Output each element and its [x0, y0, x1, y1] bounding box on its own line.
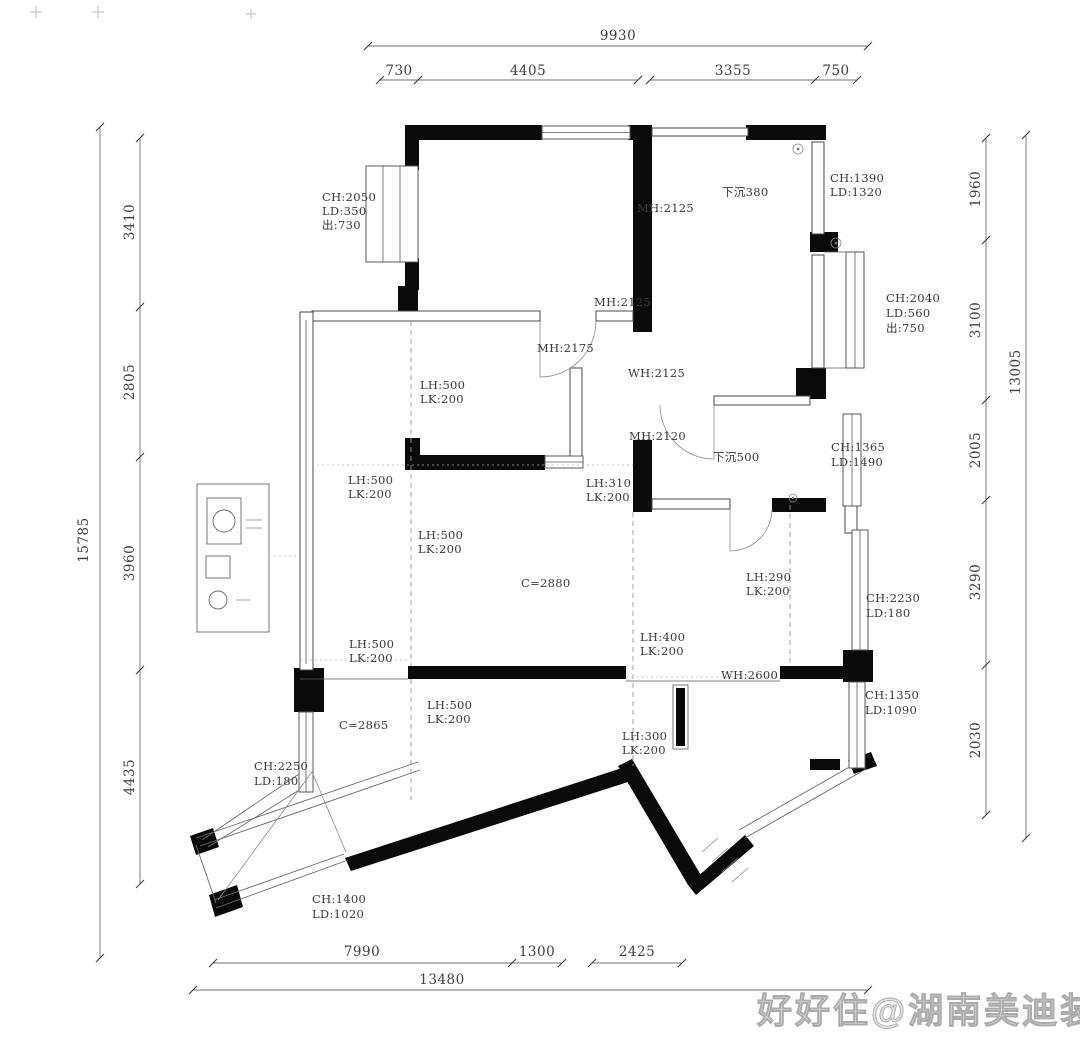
- dim-right-seg-3: 3290: [968, 564, 984, 600]
- dim-left-seg-2: 3960: [122, 545, 138, 581]
- annotation-window-width-bottom: WH:2600: [721, 668, 778, 682]
- dim-left-seg-3: 4435: [122, 759, 138, 795]
- annotation-beam-bedroom-left: LH:500: [420, 378, 465, 392]
- svg-text:LK:200: LK:200: [640, 644, 684, 658]
- dim-top-overall: 9930: [600, 28, 636, 44]
- dim-top-seg-2: 3355: [715, 63, 751, 79]
- annotation-door-height-mid-low: MH:2120: [629, 429, 686, 443]
- svg-text:LD:180: LD:180: [866, 606, 910, 620]
- annotation-bay-window-top-left: CH:2050: [322, 190, 376, 204]
- dim-top-seg-3: 750: [822, 63, 849, 79]
- svg-text:LK:200: LK:200: [420, 392, 464, 406]
- annotation-door-height-mid-left: MH:2175: [537, 341, 594, 355]
- annotation-door-height-top: MH:2125: [637, 201, 694, 215]
- frame-marks: [30, 6, 256, 19]
- windows: [299, 126, 868, 792]
- dim-bottom-seg-2: 2425: [619, 944, 655, 960]
- dim-top-seg-1: 4405: [510, 63, 546, 79]
- svg-text:LD:180: LD:180: [254, 774, 298, 788]
- svg-text:LD:1320: LD:1320: [830, 185, 882, 199]
- svg-text:LK:200: LK:200: [348, 487, 392, 501]
- annotation-window-height-mid: WH:2125: [628, 366, 685, 380]
- svg-text:LD:560: LD:560: [886, 306, 930, 320]
- floor-plan-drawing: 9930 730 4405 3355 750 15785 3410 2805 3…: [0, 0, 1080, 1051]
- dim-bottom-seg-0: 7990: [344, 944, 380, 960]
- dim-right-seg-0: 1960: [968, 171, 984, 207]
- svg-text:LK:200: LK:200: [349, 651, 393, 665]
- room-annotations: CH:2050 LD:350 出:730 MH:2125 下沉380 CH:13…: [254, 171, 940, 921]
- annotation-beam-living-top: LH:500: [418, 528, 463, 542]
- annotation-beam-entry: LH:300: [622, 729, 667, 743]
- watermark-text: 好好住@湖南美迪装饰: [756, 992, 1080, 1031]
- walls-thin: [196, 128, 866, 908]
- annotation-window-balcony-bottom: CH:1400: [312, 892, 366, 906]
- dim-left-overall: 15785: [76, 517, 92, 562]
- svg-text:LD:1090: LD:1090: [865, 703, 917, 717]
- dim-bottom-overall: 13480: [419, 972, 464, 988]
- annotation-beam-dining: LH:500: [427, 698, 472, 712]
- dim-right-overall: 13005: [1008, 349, 1024, 394]
- annotation-window-top-right: CH:1390: [830, 171, 884, 185]
- annotation-door-height-mid-top: MH:2125: [594, 295, 651, 309]
- dim-top-seg-0: 730: [385, 63, 412, 79]
- svg-text:出:730: 出:730: [322, 218, 361, 232]
- annotation-beam-living-bottom: LH:400: [640, 630, 685, 644]
- annotation-window-right-low: CH:2230: [866, 591, 920, 605]
- annotation-beam-left-lower: LH:500: [349, 637, 394, 651]
- annotation-ceiling-dining: C=2865: [339, 718, 389, 732]
- annotation-sunken-area-top: 下沉380: [722, 185, 768, 199]
- annotation-window-right-bottom: CH:1350: [865, 688, 919, 702]
- svg-text:LD:1490: LD:1490: [831, 455, 883, 469]
- annotation-beam-corridor: LH:310: [586, 476, 631, 490]
- dim-right-seg-2: 2005: [968, 432, 984, 468]
- svg-text:LK:200: LK:200: [746, 584, 790, 598]
- annotation-beam-left-wall: LH:500: [348, 473, 393, 487]
- svg-text:LK:200: LK:200: [418, 542, 462, 556]
- dim-left-seg-1: 2805: [122, 364, 138, 400]
- annotation-ceiling-living: C=2880: [521, 576, 571, 590]
- svg-text:LK:200: LK:200: [586, 490, 630, 504]
- annotation-window-balcony-left: CH:2250: [254, 759, 308, 773]
- annotation-beam-right: LH:290: [746, 570, 791, 584]
- svg-text:LK:200: LK:200: [622, 743, 666, 757]
- dim-left-seg-0: 3410: [122, 204, 138, 240]
- svg-text:出:750: 出:750: [886, 321, 925, 335]
- annotation-bay-window-right: CH:2040: [886, 291, 940, 305]
- dim-right-seg-4: 2030: [968, 722, 984, 758]
- dim-right-seg-1: 3100: [968, 302, 984, 338]
- floor-plan-page: 9930 730 4405 3355 750 15785 3410 2805 3…: [0, 0, 1080, 1051]
- svg-text:LD:350: LD:350: [322, 204, 366, 218]
- fixture-box: [197, 484, 299, 632]
- dim-bottom-seg-1: 1300: [519, 944, 555, 960]
- dimension-lines: [96, 42, 1030, 994]
- annotation-sunken-area-mid: 下沉500: [713, 450, 759, 464]
- annotation-window-right-mid: CH:1365: [831, 440, 885, 454]
- svg-text:LD:1020: LD:1020: [312, 907, 364, 921]
- svg-text:LK:200: LK:200: [427, 712, 471, 726]
